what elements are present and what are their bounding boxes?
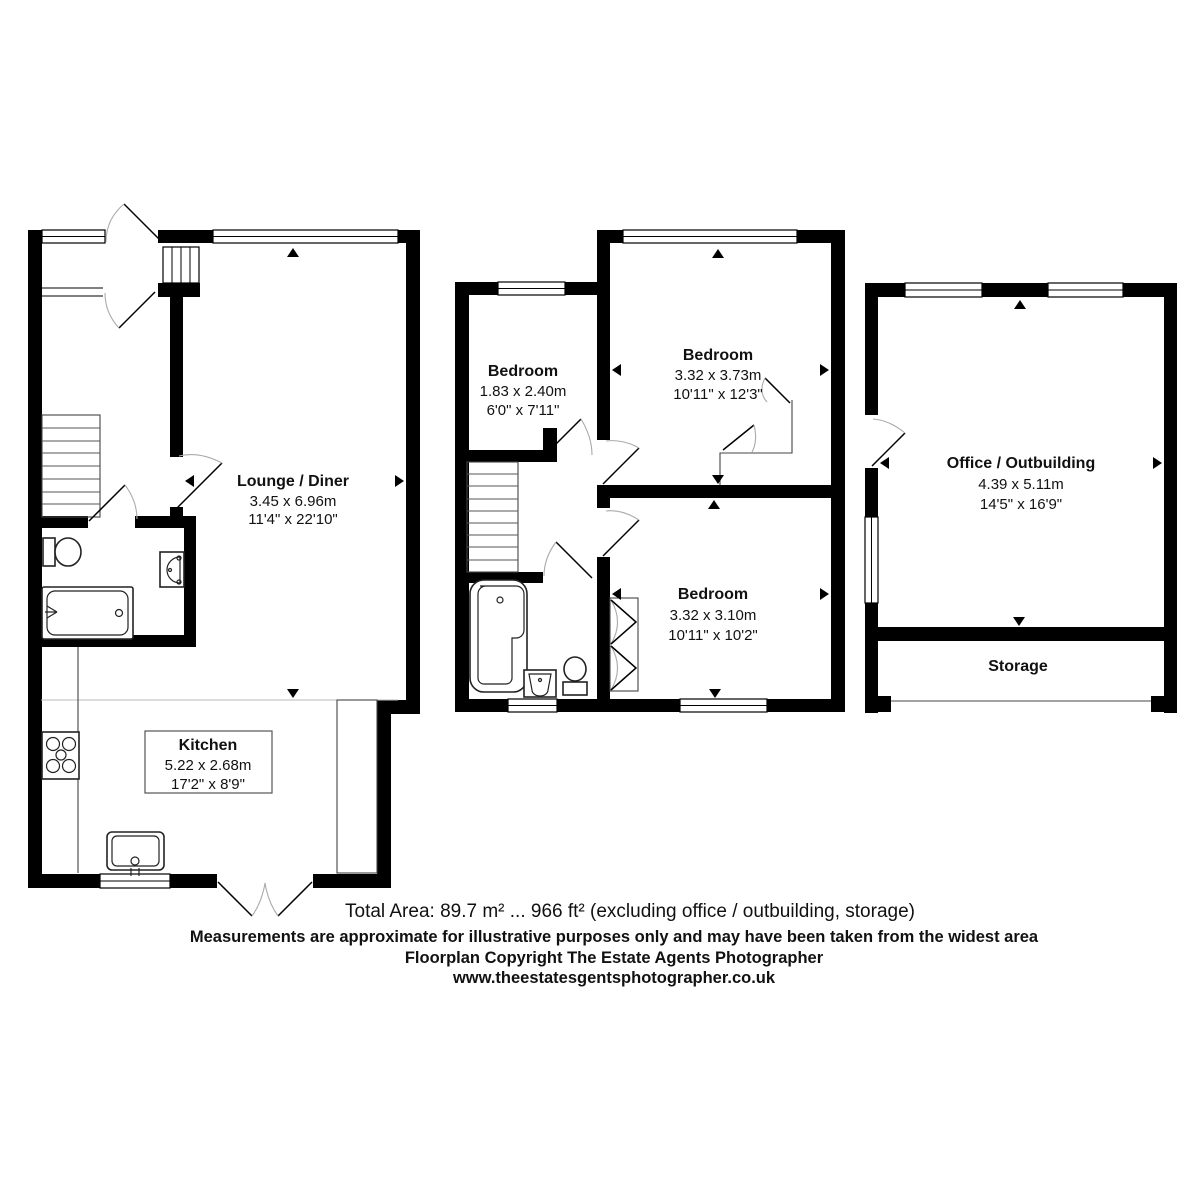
arrow-up-icon [708, 500, 720, 509]
room-name: Bedroom [678, 586, 748, 603]
copyright-text: Floorplan Copyright The Estate Agents Ph… [405, 949, 824, 967]
website-text: www.theestatesgentsphotographer.co.uk [452, 969, 776, 987]
ground-floor-doors [89, 204, 312, 916]
arrow-right-icon [395, 475, 404, 487]
room-dim-metric: 1.83 x 2.40m [480, 383, 567, 400]
room-name: Office / Outbuilding [947, 455, 1095, 472]
ground-floor: Lounge / Diner 3.45 x 6.96m 11'4" x 22'1… [28, 204, 420, 916]
ground-bathroom-fixtures [42, 538, 184, 639]
first-floor-bathroom-fixtures [470, 580, 587, 697]
bathroom-door-icon [556, 542, 592, 578]
wardrobe-icon [610, 598, 638, 691]
room-dim-imperial: 10'11" x 12'3" [673, 386, 763, 403]
room-label-storage: Storage [988, 658, 1048, 675]
arrow-up-icon [712, 249, 724, 258]
room-label-kitchen: Kitchen 5.22 x 2.68m 17'2" x 8'9" [145, 731, 272, 793]
first-floor: Bedroom 1.83 x 2.40m 6'0" x 7'11" Bedroo… [455, 230, 845, 712]
stairs-icon [42, 415, 100, 517]
room-dim-imperial: 14'5" x 16'9" [980, 496, 1062, 513]
room-label-lounge: Lounge / Diner 3.45 x 6.96m 11'4" x 22'1… [237, 473, 349, 528]
counter [337, 700, 377, 873]
stairs-icon [467, 462, 518, 572]
bedroom-door-icon [603, 520, 639, 556]
room-label-office: Office / Outbuilding 4.39 x 5.11m 14'5" … [947, 455, 1095, 513]
arrow-right-icon [820, 364, 829, 376]
room-dim-metric: 3.45 x 6.96m [250, 493, 337, 510]
floorplan-page: Lounge / Diner 3.45 x 6.96m 11'4" x 22'1… [0, 0, 1200, 1200]
bathroom-door-icon [89, 485, 125, 521]
floorplan-drawing: Lounge / Diner 3.45 x 6.96m 11'4" x 22'1… [0, 0, 1200, 1200]
room-dim-imperial: 10'11" x 10'2" [668, 627, 758, 644]
arrow-up-icon [287, 248, 299, 257]
room-dim-metric: 5.22 x 2.68m [165, 757, 252, 774]
room-name: Bedroom [683, 347, 753, 364]
arrow-left-icon [880, 457, 889, 469]
room-dim-metric: 3.32 x 3.10m [670, 607, 757, 624]
arrow-left-icon [185, 475, 194, 487]
french-door-icon [218, 882, 252, 916]
room-label-bedroom1: Bedroom 1.83 x 2.40m 6'0" x 7'11" [480, 363, 567, 419]
disclaimer-text: Measurements are approximate for illustr… [190, 928, 1039, 946]
toilet-icon [43, 538, 55, 566]
room-dim-imperial: 11'4" x 22'10" [248, 511, 338, 528]
room-name: Bedroom [488, 363, 558, 380]
arrow-up-icon [1014, 300, 1026, 309]
room-dim-imperial: 6'0" x 7'11" [487, 402, 560, 419]
footer: Total Area: 89.7 m² ... 966 ft² (excludi… [190, 901, 1039, 987]
toilet-icon [564, 657, 586, 681]
outbuilding: Office / Outbuilding 4.39 x 5.11m 14'5" … [865, 283, 1177, 713]
arrow-left-icon [612, 364, 621, 376]
room-dim-imperial: 17'2" x 8'9" [171, 776, 245, 793]
first-floor-doors [544, 419, 639, 578]
total-area-text: Total Area: 89.7 m² ... 966 ft² (excludi… [345, 901, 915, 922]
lounge-door-icon [177, 463, 222, 508]
arrow-right-icon [1153, 457, 1162, 469]
hall-door-icon [119, 292, 155, 328]
bedroom-door-icon [603, 448, 639, 484]
arrow-down-icon [1013, 617, 1025, 626]
room-name: Storage [988, 658, 1048, 675]
entry-door-icon [124, 204, 160, 240]
arrow-right-icon [820, 588, 829, 600]
arrow-down-icon [712, 475, 724, 484]
room-dim-metric: 3.32 x 3.73m [675, 367, 762, 384]
arrow-down-icon [287, 689, 299, 698]
kitchen-sink-icon [107, 832, 164, 870]
room-dim-metric: 4.39 x 5.11m [978, 476, 1064, 493]
room-name: Lounge / Diner [237, 473, 349, 490]
room-name: Kitchen [179, 737, 238, 754]
room-label-bedroom2: Bedroom 3.32 x 3.73m 10'11" x 12'3" [673, 347, 763, 403]
room-label-bedroom3: Bedroom 3.32 x 3.10m 10'11" x 10'2" [668, 586, 758, 644]
arrow-down-icon [709, 689, 721, 698]
